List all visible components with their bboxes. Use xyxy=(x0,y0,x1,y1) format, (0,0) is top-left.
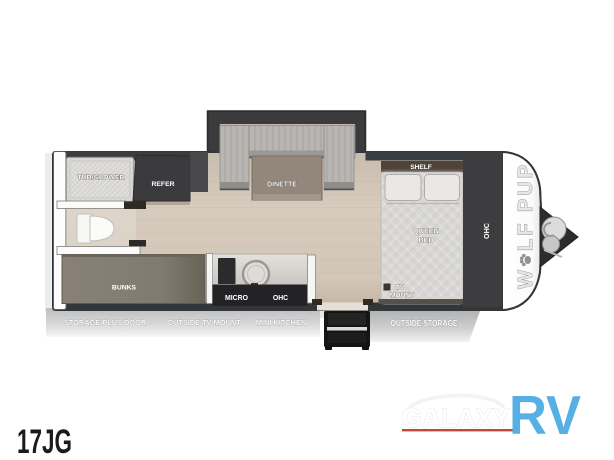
svg-text:REFER: REFER xyxy=(151,181,174,188)
svg-text:OHC: OHC xyxy=(273,295,288,302)
svg-text:OUTSIDE TV MOUNT: OUTSIDE TV MOUNT xyxy=(167,318,241,327)
svg-text:W: W xyxy=(515,270,537,289)
svg-text:LF PUP: LF PUP xyxy=(515,162,537,251)
svg-text:SHELF: SHELF xyxy=(410,164,432,171)
svg-text:OUTSIDE STORAGE: OUTSIDE STORAGE xyxy=(391,319,458,328)
svg-text:STORAGE PLUS DOOR: STORAGE PLUS DOOR xyxy=(64,318,147,327)
svg-text:GALAXY: GALAXY xyxy=(402,403,510,433)
svg-text:BUNKS: BUNKS xyxy=(112,285,137,292)
svg-text:17JG: 17JG xyxy=(17,423,72,460)
svg-text:OHC: OHC xyxy=(482,223,491,239)
svg-text:DINETTE: DINETTE xyxy=(267,182,297,189)
svg-text:TV: TV xyxy=(396,285,405,292)
svg-text:MINI KITCHEN: MINI KITCHEN xyxy=(256,318,307,327)
svg-text:RV: RV xyxy=(509,384,581,446)
svg-text:TUB/SHOWER: TUB/SHOWER xyxy=(78,175,126,182)
svg-text:BED: BED xyxy=(418,236,433,245)
svg-text:MOUNT: MOUNT xyxy=(390,292,414,299)
svg-text:MICRO: MICRO xyxy=(225,295,249,302)
svg-text:QUEEN: QUEEN xyxy=(413,227,439,236)
